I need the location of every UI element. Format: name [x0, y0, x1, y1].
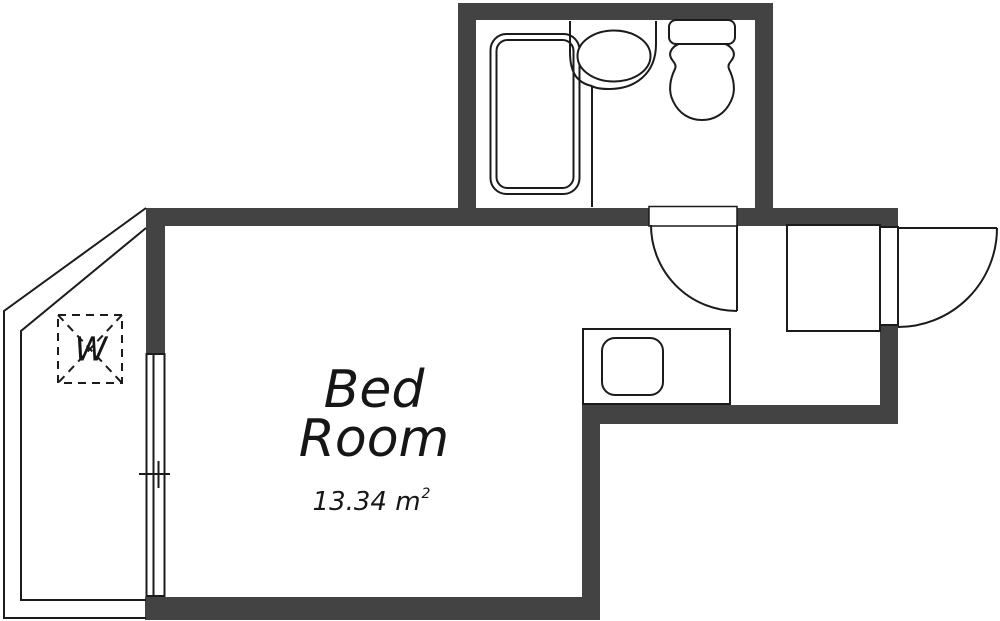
balcony-inner-edge — [21, 228, 146, 600]
toilet-tank — [669, 20, 735, 44]
wall-bathroom-left — [458, 3, 476, 209]
entry-closet — [787, 225, 880, 331]
toilet — [669, 20, 735, 120]
wall-bedroom-left — [146, 208, 165, 355]
bedroom-label-line2: Room — [299, 415, 449, 464]
wall-bathroom-top — [458, 3, 773, 20]
bathtub-inner-rim — [497, 40, 574, 188]
wall-entrance-right — [880, 326, 898, 424]
entrance-door-leaf — [880, 227, 898, 325]
wall-lower-right — [582, 405, 600, 620]
wall-bathroom-right — [755, 3, 773, 209]
bathroom-door-swing-arc — [651, 225, 737, 311]
bedroom-area-superscript: 2 — [422, 486, 431, 502]
bathroom-door-opening — [649, 207, 737, 227]
washbasin-bowl — [578, 31, 651, 82]
bathtub — [491, 34, 580, 194]
floor-plan: Bed Room 13.34 m2 W — [0, 0, 1000, 621]
wall-main-top — [146, 208, 898, 226]
balcony-outer-edge — [4, 208, 146, 618]
washbasin — [570, 21, 656, 207]
bedroom-area-value: 13.34 m — [313, 487, 421, 517]
toilet-bowl — [670, 43, 734, 120]
floor-plan-drawing — [0, 0, 1000, 621]
wall-under-kitchen — [582, 405, 898, 424]
entrance-door-swing-arc — [898, 228, 997, 327]
bedroom-area-label: 13.34 m2 — [313, 487, 430, 517]
bedroom-label-line1: Bed — [299, 366, 449, 415]
bedroom-label: Bed Room — [299, 366, 449, 464]
washer-label: W — [75, 330, 108, 369]
balcony — [4, 208, 146, 618]
window — [139, 354, 170, 596]
entrance-door — [880, 227, 997, 327]
wall-bedroom-bottom — [145, 597, 600, 620]
kitchen-sink — [602, 338, 663, 395]
bathroom-door — [649, 207, 737, 312]
kitchen-counter — [583, 329, 730, 404]
